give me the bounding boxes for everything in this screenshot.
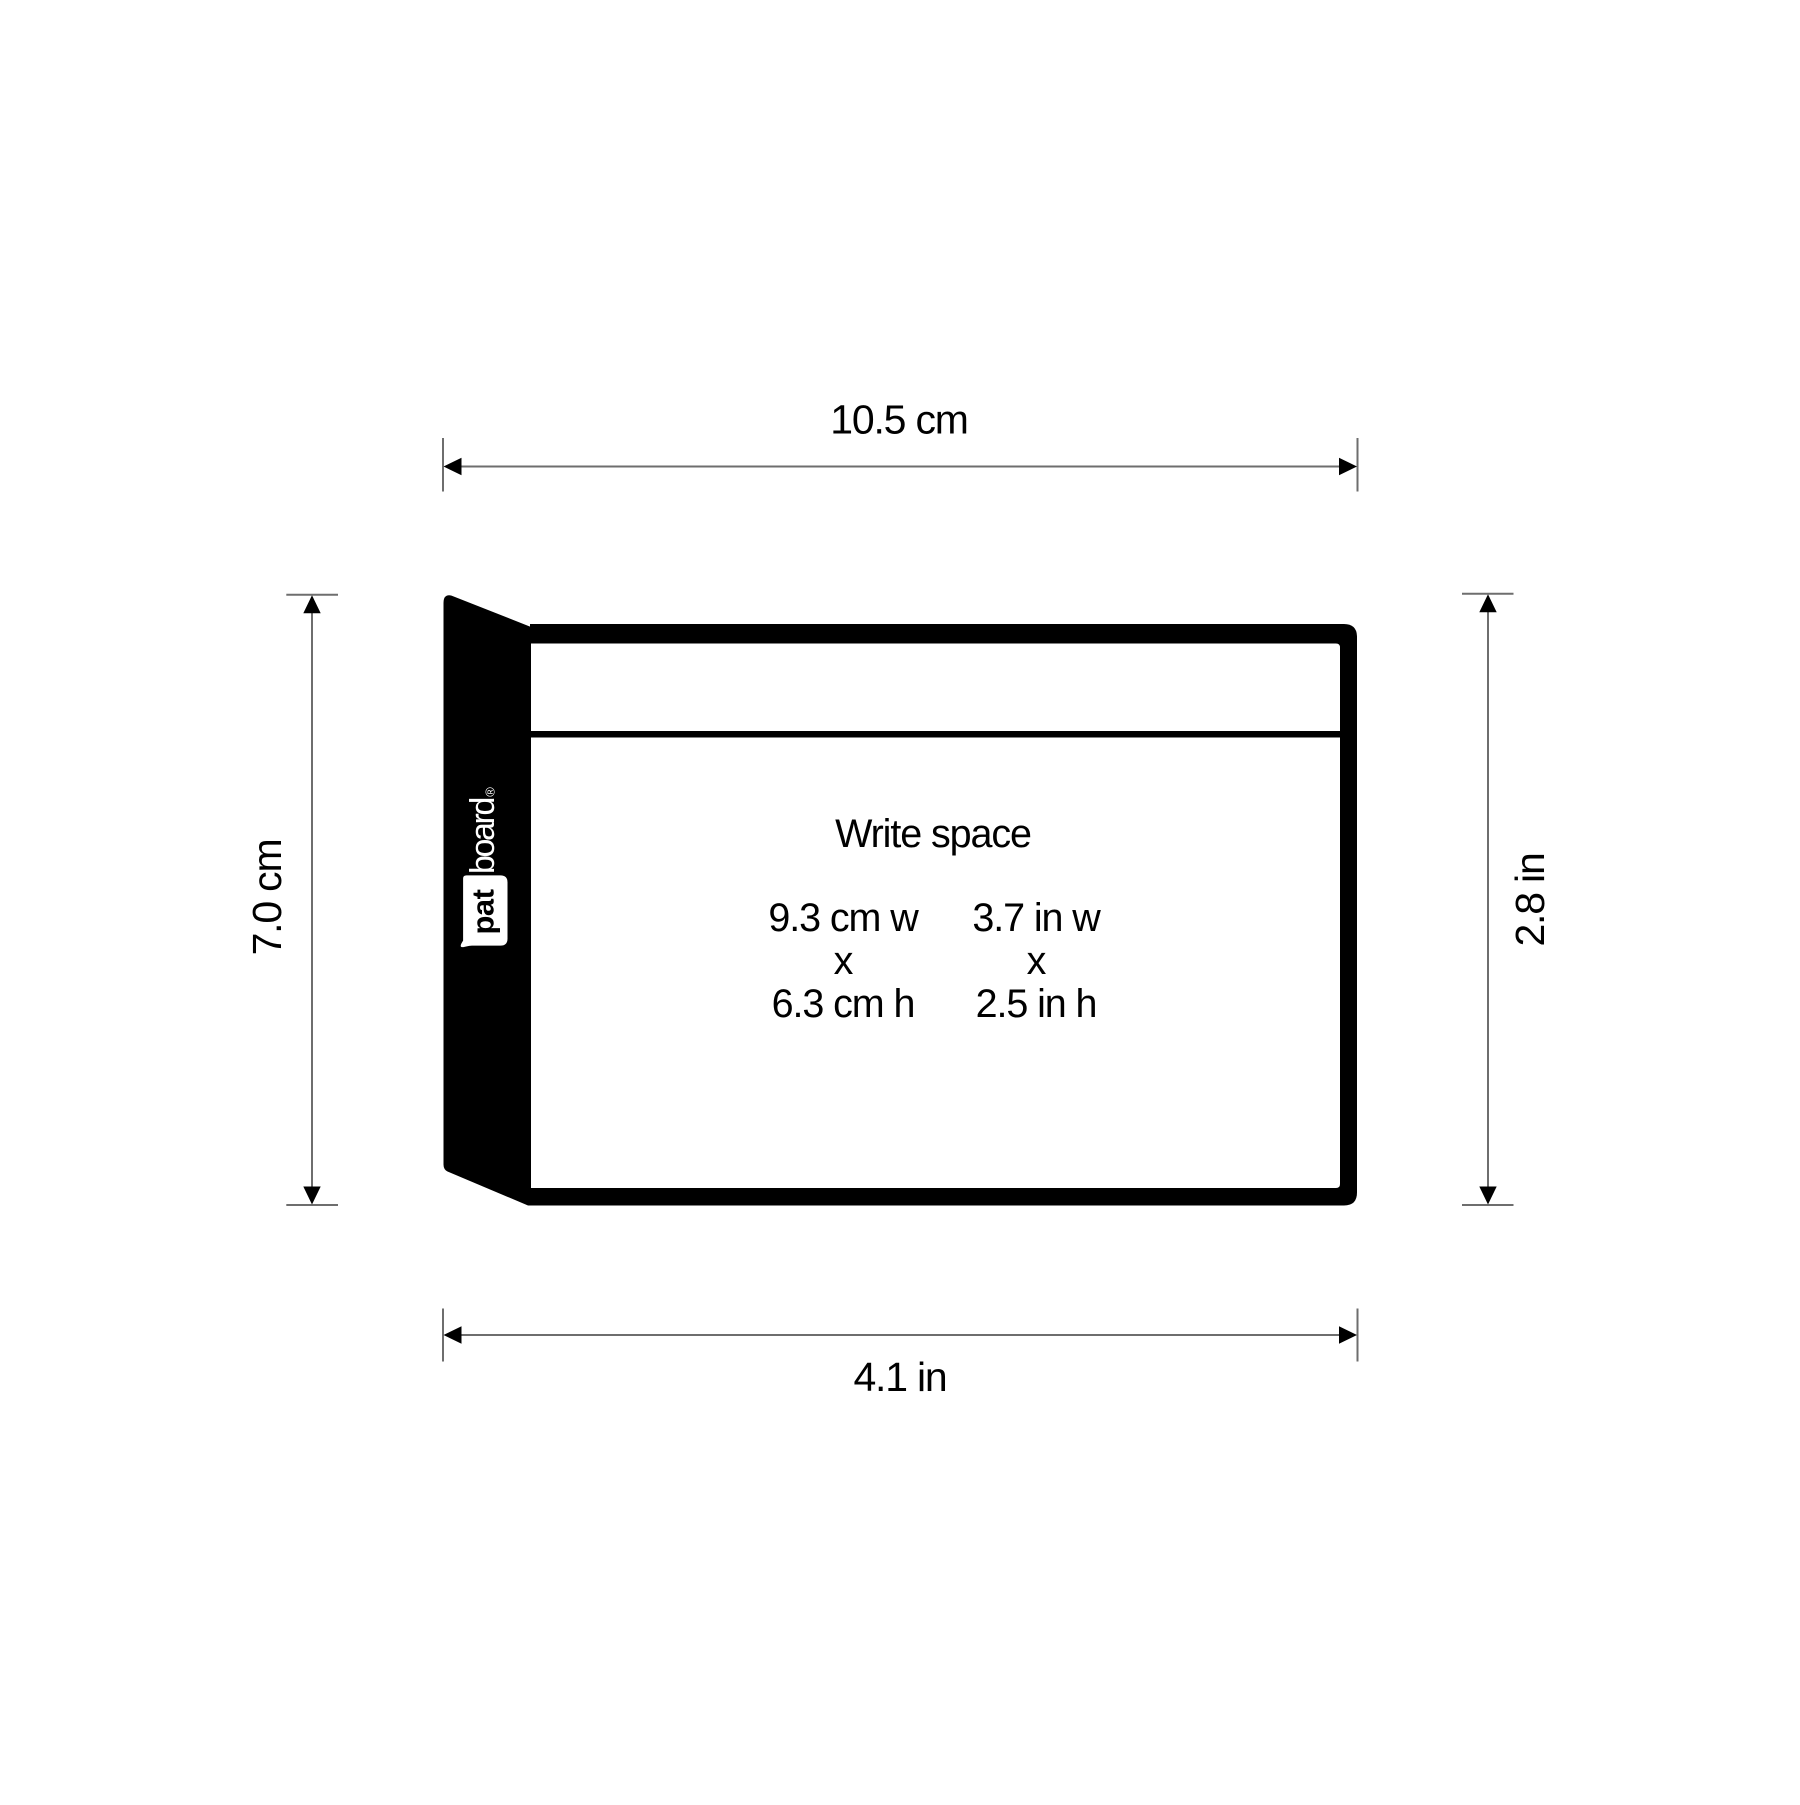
- svg-text:7.0 cm: 7.0 cm: [244, 840, 290, 956]
- svg-text:2.5 in h: 2.5 in h: [976, 982, 1097, 1026]
- svg-text:4.1 in: 4.1 in: [853, 1354, 946, 1400]
- svg-text:10.5 cm: 10.5 cm: [830, 397, 967, 443]
- svg-text:pat: pat: [466, 889, 501, 934]
- svg-text:x: x: [1027, 939, 1047, 983]
- svg-text:board: board: [464, 799, 502, 874]
- svg-text:x: x: [834, 939, 854, 983]
- svg-text:®: ®: [482, 787, 497, 797]
- svg-text:3.7 in w: 3.7 in w: [972, 896, 1101, 940]
- svg-text:2.8 in: 2.8 in: [1507, 853, 1553, 946]
- svg-text:9.3 cm w: 9.3 cm w: [768, 896, 919, 940]
- svg-text:6.3 cm h: 6.3 cm h: [772, 982, 915, 1026]
- svg-text:Write space: Write space: [835, 812, 1031, 856]
